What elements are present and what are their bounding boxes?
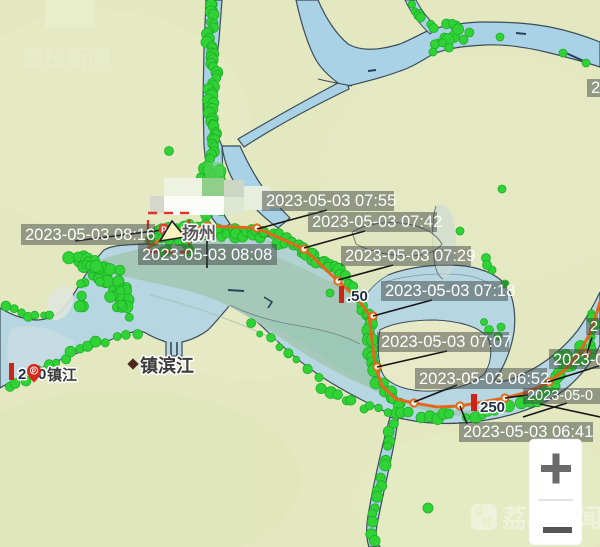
svg-text:2023-05-03 06:41: 2023-05-03 06:41 — [463, 423, 593, 441]
svg-text:2: 2 — [18, 366, 26, 383]
svg-text:镇江: 镇江 — [47, 366, 77, 384]
svg-text:2023-05-03 07:29: 2023-05-03 07:29 — [345, 247, 475, 265]
svg-text:扬州: 扬州 — [182, 223, 216, 243]
svg-text:2023-0: 2023-0 — [553, 351, 600, 369]
svg-text:2023-05-03 07:18: 2023-05-03 07:18 — [385, 282, 515, 300]
svg-text:2023-05-03 07:55: 2023-05-03 07:55 — [266, 192, 396, 210]
svg-text:2: 2 — [590, 319, 598, 335]
svg-text:2023-05-03 07:42: 2023-05-03 07:42 — [312, 213, 442, 231]
svg-text:2023-05-0: 2023-05-0 — [527, 388, 593, 404]
svg-text:2023-05-03 06:52: 2023-05-03 06:52 — [419, 370, 549, 388]
svg-text:荔枝新闻: 荔枝新闻 — [22, 46, 110, 71]
svg-text:2023-05-03 08:08: 2023-05-03 08:08 — [142, 246, 272, 264]
svg-text:P: P — [32, 368, 37, 375]
svg-text:镇滨江: 镇滨江 — [140, 355, 194, 376]
svg-text:枝: 枝 — [482, 516, 492, 529]
svg-text:2023-05-03 07:07: 2023-05-03 07:07 — [381, 333, 511, 351]
svg-text:2: 2 — [591, 79, 600, 97]
svg-text:250: 250 — [480, 399, 505, 416]
svg-text:.50: .50 — [347, 288, 368, 305]
svg-text:2023-05-03 08:16: 2023-05-03 08:16 — [25, 226, 155, 244]
svg-text:荔: 荔 — [474, 505, 484, 518]
